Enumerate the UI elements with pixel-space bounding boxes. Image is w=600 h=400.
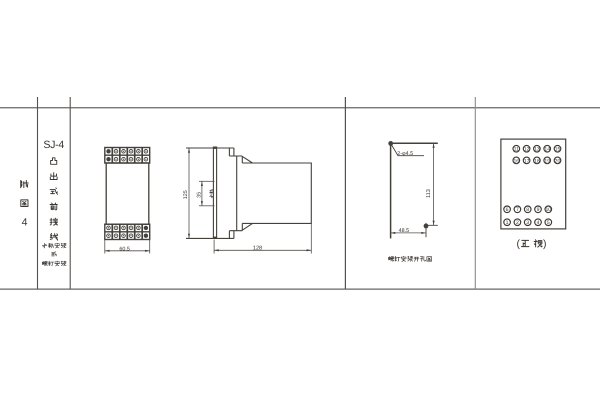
svg-text:): ) bbox=[543, 238, 547, 250]
svg-text:14: 14 bbox=[544, 147, 550, 153]
svg-text:48.5: 48.5 bbox=[399, 228, 410, 234]
svg-text:2-φ4.5: 2-φ4.5 bbox=[397, 151, 413, 157]
svg-text:35: 35 bbox=[196, 192, 202, 198]
svg-text:17: 17 bbox=[524, 158, 530, 164]
svg-text:(: ( bbox=[516, 238, 520, 250]
svg-text:SJ-4: SJ-4 bbox=[43, 139, 64, 151]
svg-text:3: 3 bbox=[526, 220, 529, 226]
svg-text:19: 19 bbox=[544, 158, 550, 164]
svg-text:20: 20 bbox=[555, 158, 561, 164]
svg-text:125: 125 bbox=[183, 190, 189, 199]
svg-text:4: 4 bbox=[537, 220, 540, 226]
svg-text:9: 9 bbox=[537, 207, 540, 213]
svg-text:15: 15 bbox=[555, 147, 561, 153]
svg-text:4: 4 bbox=[22, 217, 28, 229]
svg-text:6: 6 bbox=[506, 207, 509, 213]
svg-text:8: 8 bbox=[526, 207, 529, 213]
svg-text:5: 5 bbox=[547, 220, 550, 226]
svg-text:11: 11 bbox=[514, 147, 519, 153]
svg-text:2: 2 bbox=[516, 220, 519, 226]
svg-text:1: 1 bbox=[506, 220, 509, 226]
svg-text:60.5: 60.5 bbox=[119, 246, 130, 252]
svg-text:18: 18 bbox=[534, 158, 540, 164]
svg-text:113: 113 bbox=[426, 189, 432, 198]
svg-text:16: 16 bbox=[513, 158, 519, 164]
svg-text:12: 12 bbox=[524, 147, 530, 153]
svg-text:128: 128 bbox=[253, 245, 262, 251]
svg-text:10: 10 bbox=[545, 207, 551, 213]
svg-text:13: 13 bbox=[534, 147, 540, 153]
svg-text:7: 7 bbox=[516, 207, 519, 213]
